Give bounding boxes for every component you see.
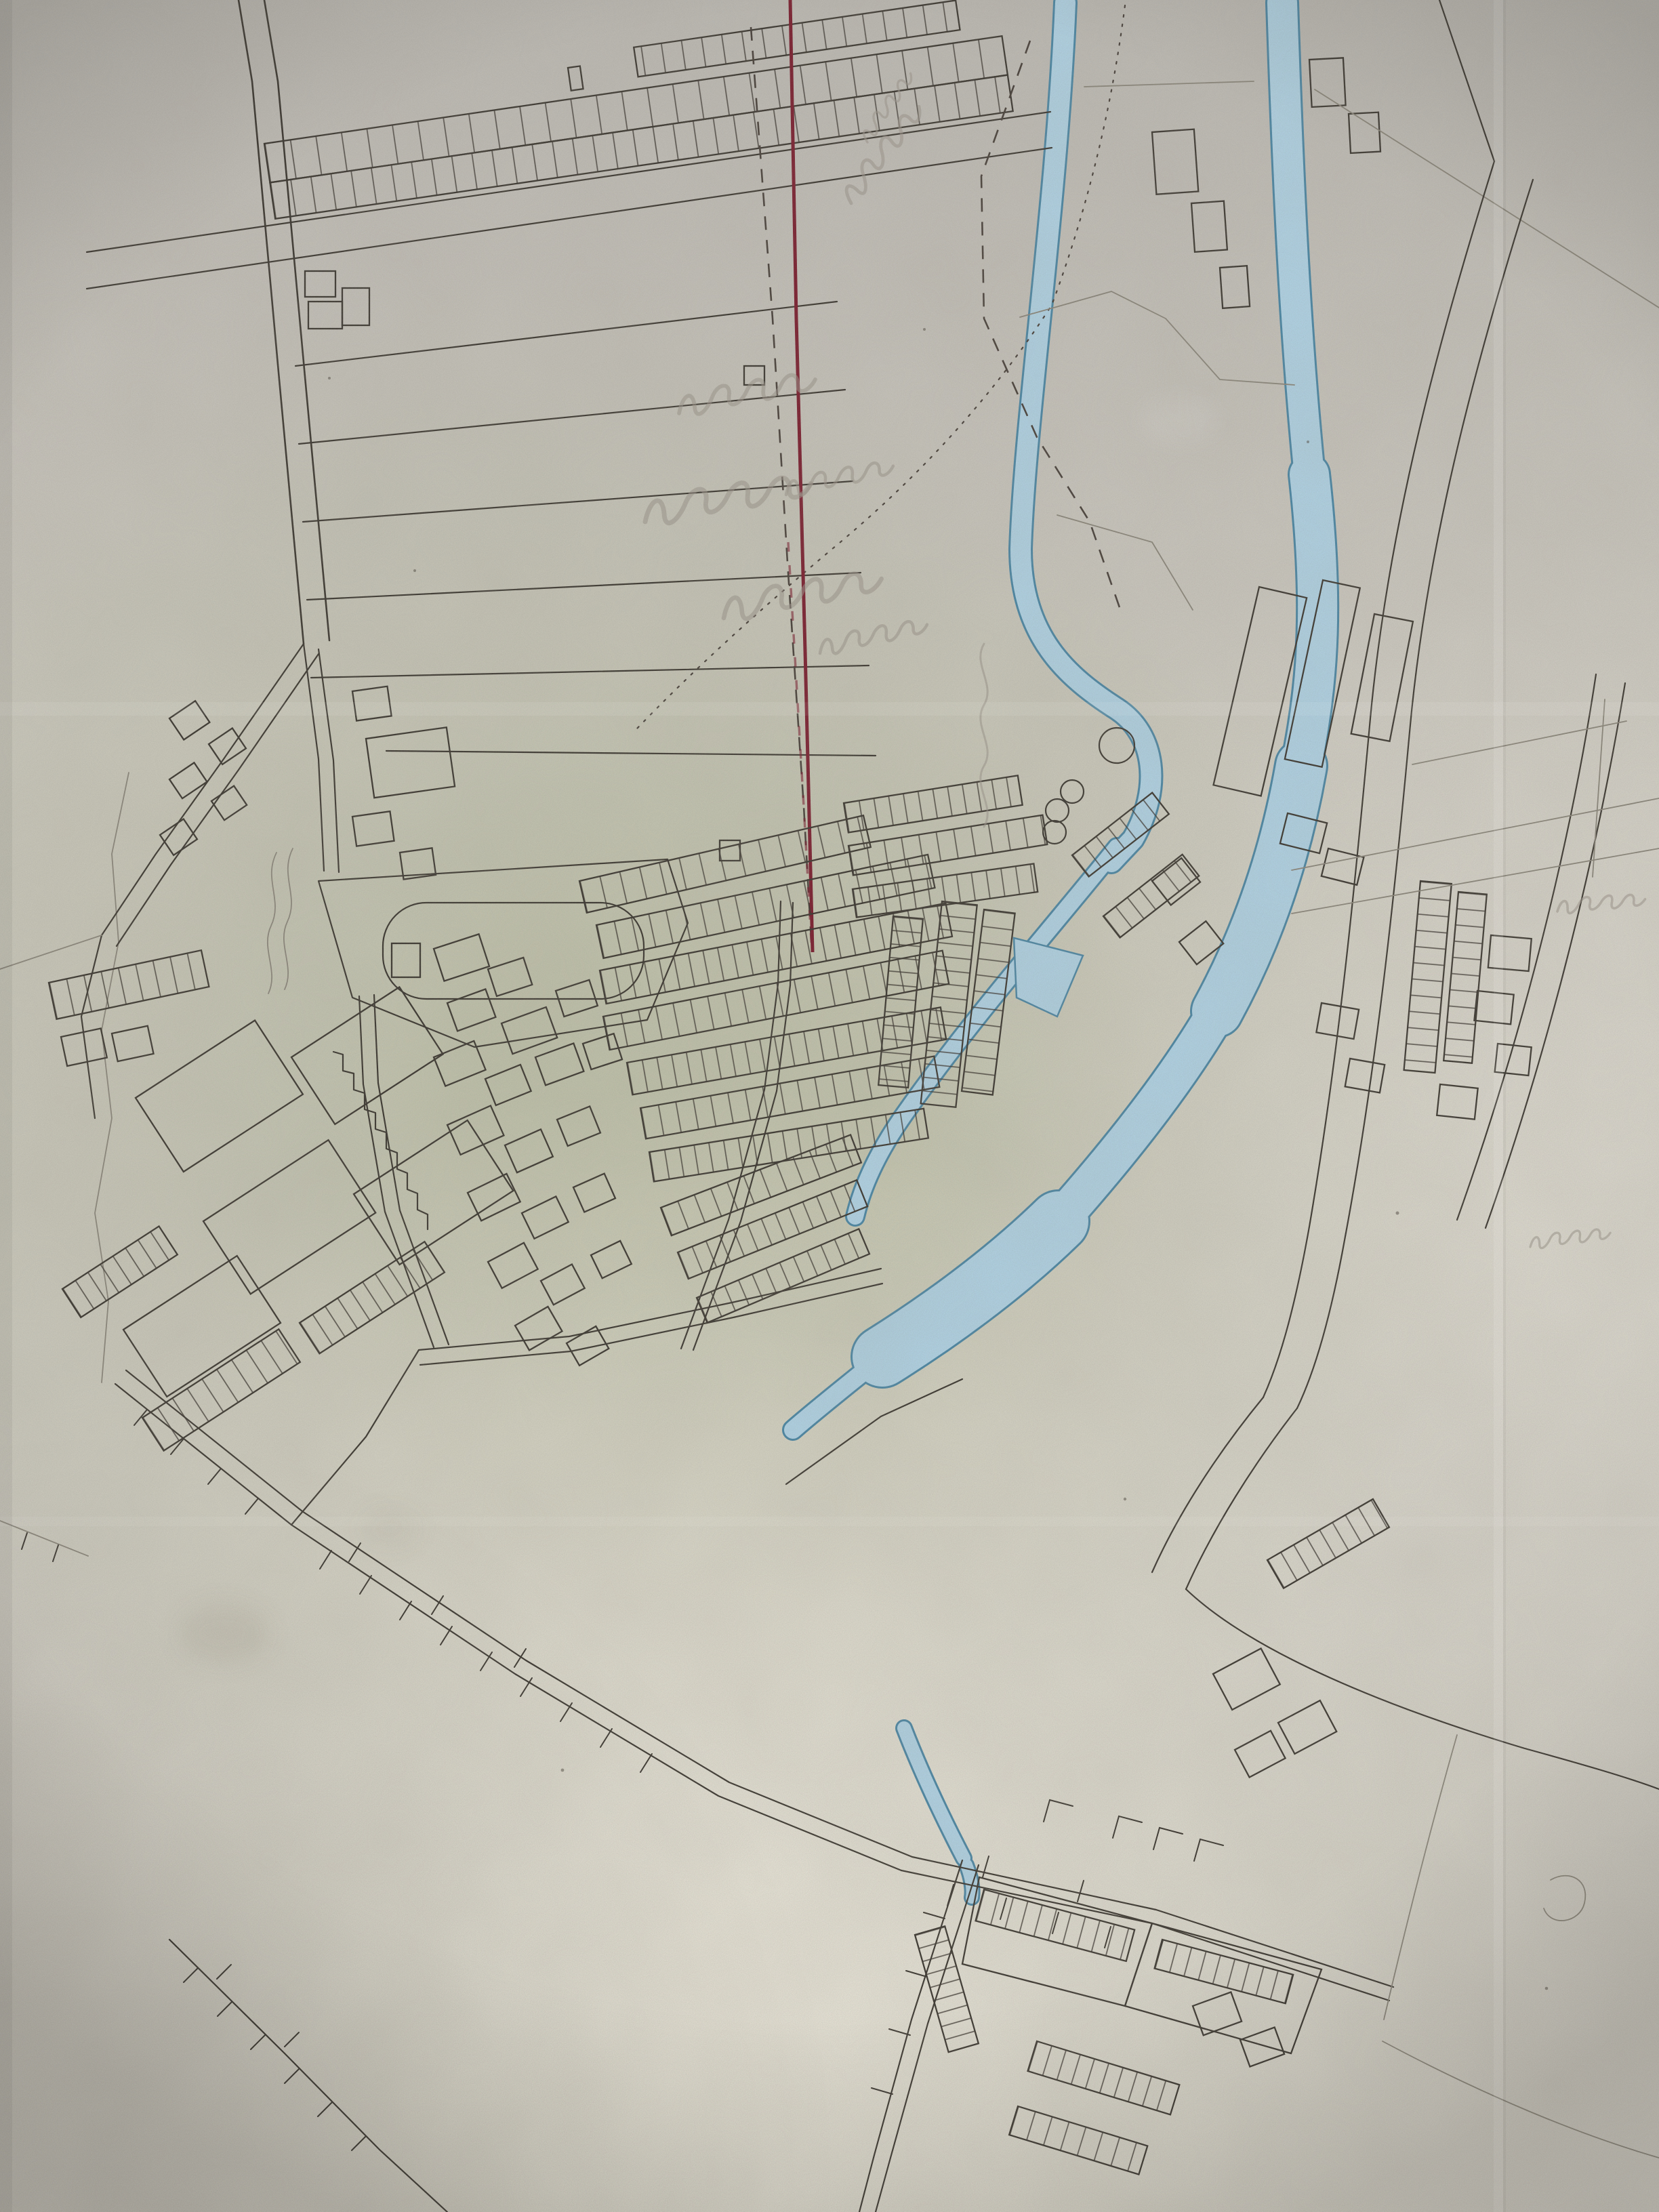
map-photo xyxy=(0,0,1659,2212)
ladder-rows-east xyxy=(878,901,1015,1107)
map-canvas xyxy=(0,0,1659,2212)
